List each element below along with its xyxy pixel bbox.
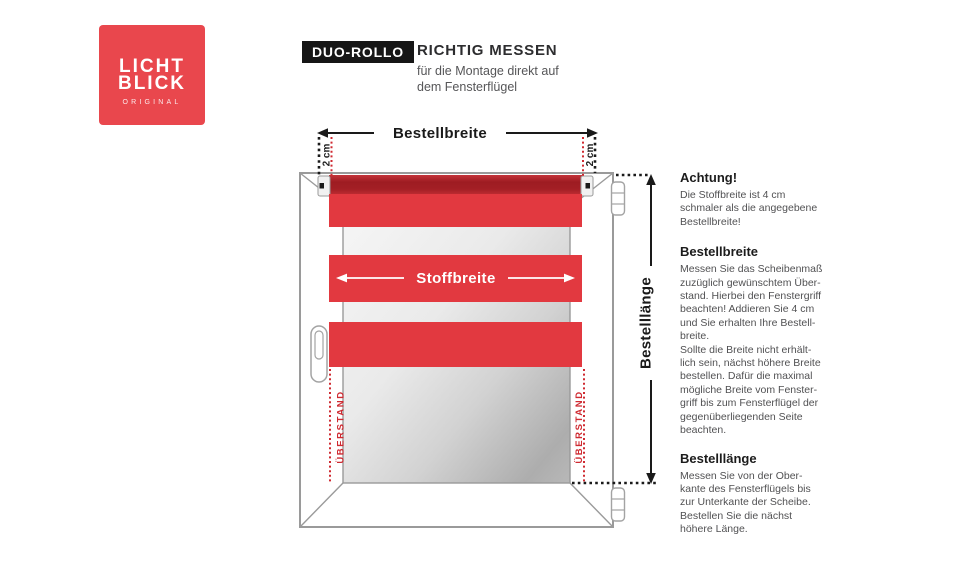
page-subtitle: für die Montage direkt auf dem Fensterfl…: [417, 64, 559, 95]
hinge-bottom-icon: [612, 488, 625, 521]
fabric-stripe-3: [329, 322, 582, 367]
info-body-bestelllaenge: Messen Sie von der Ober- kante des Fenst…: [680, 470, 838, 537]
ueberstand-label-left: ÜBERSTAND: [336, 390, 347, 463]
two-cm-label-right: 2 cm: [585, 143, 596, 166]
info-heading-bestelllaenge: Bestelllänge: [680, 451, 838, 466]
product-badge: DUO-ROLLO: [302, 41, 414, 63]
window-measurement-diagram: Stoffbreite ÜBERSTAND ÜBERSTAND 2 cm 2 c…: [280, 118, 675, 543]
ueberstand-label-right: ÜBERSTAND: [574, 390, 585, 463]
bestelllaenge-arrow: Bestelllänge: [638, 174, 656, 484]
bestelllaenge-label: Bestelllänge: [638, 277, 655, 369]
stoffbreite-label: Stoffbreite: [416, 270, 495, 287]
lichtblick-logo: LICHT BLICK ORIGINAL: [99, 25, 205, 125]
bestellbreite-arrow: Bestellbreite: [317, 125, 598, 142]
fabric-stripe-1: [329, 194, 582, 227]
two-cm-label-left: 2 cm: [322, 143, 333, 166]
roller-tube: [329, 175, 582, 195]
roller-bracket-right: [581, 176, 593, 196]
hinge-top-icon: [612, 182, 625, 215]
info-body-bestellbreite: Messen Sie das Scheibenmaß zuzüglich gew…: [680, 263, 838, 437]
info-heading-achtung: Achtung!: [680, 170, 838, 185]
window-handle-icon: [311, 326, 327, 382]
bestellbreite-label: Bestellbreite: [393, 125, 487, 142]
roller-bracket-left: [318, 176, 330, 196]
logo-text-line2: BLICK: [118, 75, 186, 92]
page-background: LICHT BLICK ORIGINAL DUO-ROLLO RICHTIG M…: [0, 0, 960, 587]
info-heading-bestellbreite: Bestellbreite: [680, 244, 838, 259]
info-column: Achtung! Die Stoffbreite ist 4 cm schmal…: [680, 170, 838, 537]
page-title: RICHTIG MESSEN: [417, 42, 557, 59]
logo-subtext: ORIGINAL: [122, 99, 181, 106]
info-body-achtung: Die Stoffbreite ist 4 cm schmaler als di…: [680, 189, 838, 229]
